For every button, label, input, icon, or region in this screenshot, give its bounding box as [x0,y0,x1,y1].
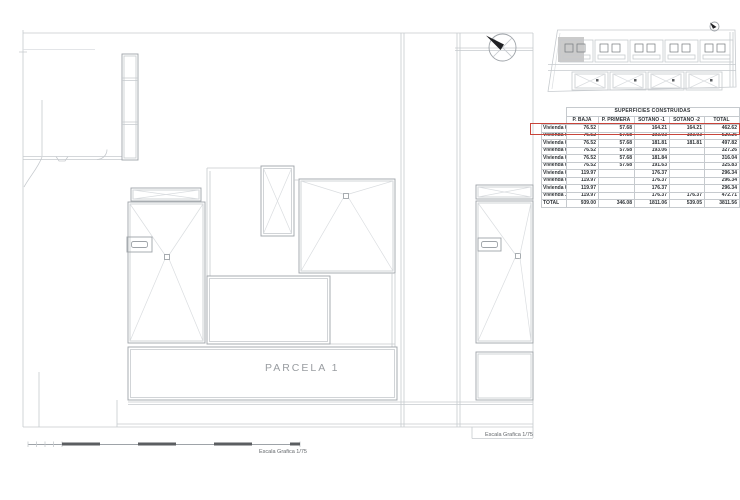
site-plan-canvas: PARCELA 1 Escala Grafica 1/75 Escala Gra… [0,0,740,500]
cell: 193.06 [635,147,670,155]
surfaces-table: SUPERFICIES CONSTRUIDAS P. BAJA P. PRIME… [541,107,740,208]
cell: 176.37 [670,192,705,200]
cell [670,185,705,193]
cell: 316.04 [705,155,740,163]
cell: 325.83 [705,162,740,170]
table-row: Vivienda 09 119.97 176.37 296.34 [542,185,740,193]
row-label: Vivienda 03 [542,140,567,148]
scalebar-label: Escala Grafica 1/75 [259,449,307,455]
cell: 76.52 [567,162,599,170]
cell: 57.68 [599,162,635,170]
table-row: Vivienda 02 76.52 57.68 193.03 193.03 52… [542,132,740,140]
row-label: Vivienda 02 [542,132,567,140]
cell: 176.37 [635,192,670,200]
cell [670,170,705,178]
cell [670,155,705,163]
table-total-row: TOTAL 939.00 346.08 1811.06 539.05 3811.… [542,200,740,208]
cell: 462.62 [705,125,740,133]
cell: 76.52 [567,140,599,148]
cell: 57.68 [599,132,635,140]
cell: 296.34 [705,177,740,185]
cell: 119.97 [567,185,599,193]
cell: 191.63 [635,162,670,170]
cell: 193.03 [635,132,670,140]
cell: 181.81 [635,140,670,148]
key-plan [548,22,736,92]
row-label: Vivienda 05 [542,155,567,163]
cell: 296.34 [705,185,740,193]
table-row: Vivienda 01 76.52 57.68 164.21 164.21 46… [542,125,740,133]
cell: 181.81 [670,140,705,148]
cell [670,177,705,185]
north-arrow-icon [486,34,516,61]
cell: 119.97 [567,192,599,200]
cell: 176.37 [635,170,670,178]
cell: 176.37 [635,185,670,193]
main-plan: PARCELA 1 Escala Grafica 1/75 Escala Gra… [19,30,533,455]
cell: 76.52 [567,147,599,155]
cell: 76.52 [567,132,599,140]
cell: 57.68 [599,155,635,163]
cell: 497.82 [705,140,740,148]
cell: 3811.56 [705,200,740,208]
plot-boundaries [19,30,533,438]
cell: 539.05 [670,200,705,208]
corner-cell [542,108,567,117]
table-title-row: SUPERFICIES CONSTRUIDAS [542,108,740,117]
cell: 472.71 [705,192,740,200]
row-label: Vivienda 10 [542,192,567,200]
table-row: Vivienda 04 76.52 57.68 193.06 327.26 [542,147,740,155]
frame-scale-block: Escala Grafica 1/75 [472,427,533,439]
cell [599,185,635,193]
cell: 57.68 [599,140,635,148]
cell: 164.21 [670,125,705,133]
parcela-label: PARCELA 1 [265,362,339,374]
cell: 164.21 [635,125,670,133]
row-label: TOTAL [542,200,567,208]
key-plan-highlighted-parcel [558,37,584,62]
cell: 346.08 [599,200,635,208]
table-row: Vivienda 03 76.52 57.68 181.81 181.81 49… [542,140,740,148]
cell: 181.84 [635,155,670,163]
col-header: P. BAJA [567,117,599,125]
table-row: Vivienda 08 119.97 176.37 296.34 [542,177,740,185]
cell: 119.97 [567,170,599,178]
table-row: Vivienda 06 76.52 57.68 191.63 325.83 [542,162,740,170]
cell: 76.52 [567,155,599,163]
row-label: Vivienda 06 [542,162,567,170]
cell [599,177,635,185]
cell: 76.52 [567,125,599,133]
row-label: Vivienda 09 [542,185,567,193]
cell: 296.34 [705,170,740,178]
cell: 520.26 [705,132,740,140]
cell: 57.68 [599,147,635,155]
drawing-sheet: PARCELA 1 Escala Grafica 1/75 Escala Gra… [0,0,740,500]
corner-cell [542,117,567,125]
col-header: SÓTANO -2 [670,117,705,125]
cell: 119.97 [567,177,599,185]
col-header: P. PRIMERA [599,117,635,125]
cell: 1811.06 [635,200,670,208]
cell [670,162,705,170]
cell: 57.68 [599,125,635,133]
frame-scale-label: Escala Grafica 1/75 [485,432,533,438]
row-label: Vivienda 04 [542,147,567,155]
house-parcela-2-partial [476,185,533,400]
cell: 176.37 [635,177,670,185]
cell: 939.00 [567,200,599,208]
cell: 327.26 [705,147,740,155]
planter-strip [122,54,138,160]
cell [599,170,635,178]
table-row: Vivienda 07 119.97 176.37 296.34 [542,170,740,178]
col-header: TOTAL [705,117,740,125]
table-title: SUPERFICIES CONSTRUIDAS [567,108,740,117]
row-label: Vivienda 01 [542,125,567,133]
cell [670,147,705,155]
table-row: Vivienda 10 119.97 176.37 176.37 472.71 [542,192,740,200]
cell: 193.03 [670,132,705,140]
row-label: Vivienda 07 [542,170,567,178]
table-row: Vivienda 05 76.52 57.68 181.84 316.04 [542,155,740,163]
cell [599,192,635,200]
col-header: SÓTANO -1 [635,117,670,125]
graphic-scale-bar [28,442,300,448]
table-header-row: P. BAJA P. PRIMERA SÓTANO -1 SÓTANO -2 T… [542,117,740,125]
row-label: Vivienda 08 [542,177,567,185]
